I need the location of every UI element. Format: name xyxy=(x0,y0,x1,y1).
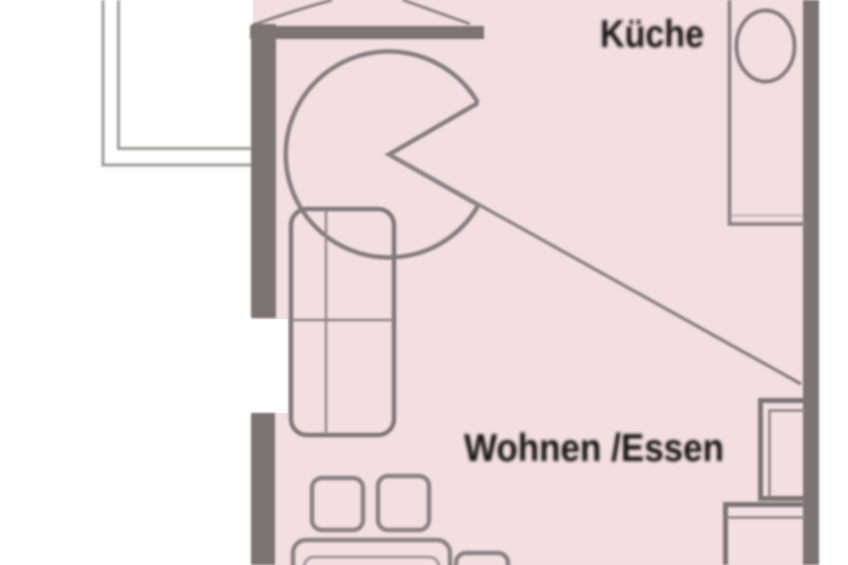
svg-text:Küche: Küche xyxy=(600,13,704,56)
svg-text:Wohnen /Essen: Wohnen /Essen xyxy=(464,427,724,470)
